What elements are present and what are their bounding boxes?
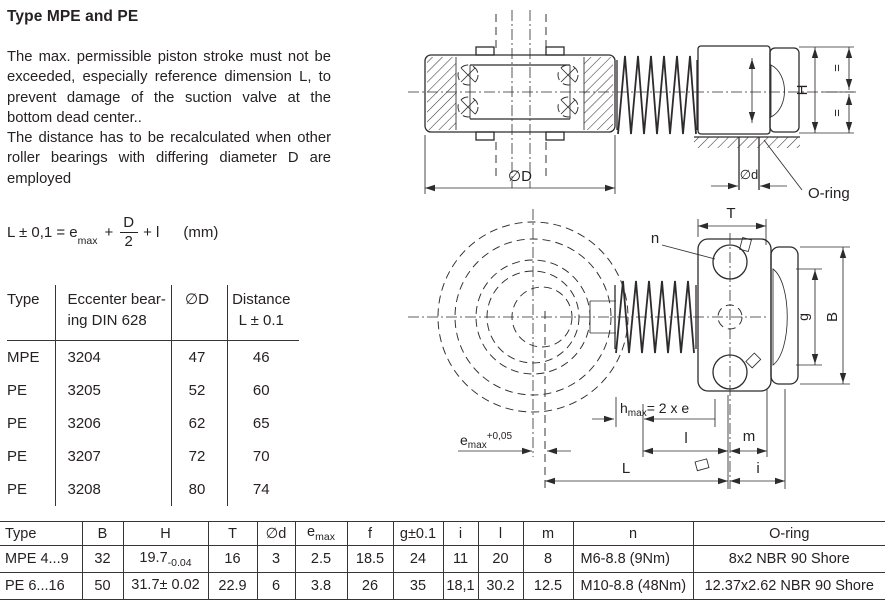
header-line: Distance	[228, 290, 296, 310]
col-header-f: f	[347, 522, 393, 546]
dimension-table: Type B H T ∅d emax f g±0.1 i l m n O-rin…	[0, 521, 885, 600]
cell-type: MPE	[7, 340, 55, 374]
cell-distance: 60	[227, 374, 299, 407]
spring	[617, 56, 697, 134]
cell-diaD: 62	[171, 407, 227, 440]
cell-i: 11	[443, 546, 478, 573]
table-row: PE 3207 72 70	[7, 440, 299, 473]
cell-bearing: 3206	[55, 407, 171, 440]
formula-subscript: max	[78, 235, 98, 247]
page-title: Type MPE and PE	[7, 8, 409, 26]
dim-label-m: m	[743, 428, 756, 445]
col-header-oring: O-ring	[693, 522, 885, 546]
cell-i: 18,1	[443, 573, 478, 600]
cell-g: 35	[393, 573, 443, 600]
table-row: MPE 3204 47 46	[7, 340, 299, 374]
cell-m: 12.5	[523, 573, 573, 600]
piston-head-side	[698, 46, 799, 134]
fraction-denominator: 2	[120, 232, 138, 250]
cell-T: 22.9	[208, 573, 257, 600]
cell-oring: 12.37x2.62 NBR 90 Shore	[693, 573, 885, 600]
intro-paragraph-1: The max. permissible piston stroke must …	[7, 47, 331, 128]
dim-label-l: l	[684, 430, 687, 447]
cell-m: 8	[523, 546, 573, 573]
cell-diaD: 47	[171, 340, 227, 374]
col-header-i: i	[443, 522, 478, 546]
bearing-cross-section	[425, 47, 615, 140]
cell-distance: 70	[227, 440, 299, 473]
dim-emax: emax+0,05	[458, 431, 571, 454]
dim-label-emax: emax+0,05	[460, 431, 512, 451]
col-header-emax: emax	[295, 522, 347, 546]
formula-plus: +	[105, 224, 114, 241]
dim-L: L	[545, 460, 728, 484]
cell-bearing: 3205	[55, 374, 171, 407]
cell-T: 16	[208, 546, 257, 573]
cell-f: 18.5	[347, 546, 393, 573]
top-drawing-side-view: ∅D ∅d H = = O-ring	[408, 2, 883, 212]
formula-tail: + l	[143, 224, 159, 241]
cell-diaD: 80	[171, 473, 227, 506]
dim-label-L: L	[622, 460, 630, 477]
dim-label-i: i	[756, 460, 759, 477]
table-row: MPE 4...9 32 19.7-0.04 16 3 2.5 18.5 24 …	[0, 546, 885, 573]
shaft-centerlines	[408, 10, 856, 188]
dim-m: m	[730, 389, 767, 457]
ground-hatch	[694, 137, 800, 190]
cell-oring: 8x2 NBR 90 Shore	[693, 546, 885, 573]
cell-bearing: 3207	[55, 440, 171, 473]
cell-bearing: 3208	[55, 473, 171, 506]
cell-distance: 65	[227, 407, 299, 440]
dim-i: i	[730, 389, 785, 489]
oring-callout: O-ring	[764, 140, 850, 202]
cell-bearing: 3204	[55, 340, 171, 374]
cell-distance: 74	[227, 473, 299, 506]
cell-n: M10-8.8 (48Nm)	[573, 573, 693, 600]
cell-emax: 3.8	[295, 573, 347, 600]
table-row: PE 6...16 50 31.7± 0.02 22.9 6 3.8 26 35…	[0, 573, 885, 600]
formula-lhs: L ± 0,1 = e	[7, 224, 78, 241]
table-row: PE 3205 52 60	[7, 374, 299, 407]
fraction-numerator: D	[118, 215, 139, 232]
cell-type: PE	[7, 407, 55, 440]
formula-fraction: D 2	[118, 215, 139, 250]
cell-H: 19.7-0.04	[123, 546, 208, 573]
dim-hmax: hmax= 2 x e	[592, 397, 715, 457]
col-header-eccenter-bearing: Eccenter bear- ing DIN 628	[55, 285, 171, 340]
cell-g: 24	[393, 546, 443, 573]
cell-type: MPE 4...9	[0, 546, 82, 573]
cell-n: M6-8.8 (9Nm)	[573, 546, 693, 573]
col-header-l: l	[478, 522, 523, 546]
col-header-g: g±0.1	[393, 522, 443, 546]
cell-B: 32	[82, 546, 123, 573]
dim-label-diad: ∅d	[740, 167, 759, 182]
dim-label-T: T	[726, 205, 735, 222]
dim-label-g: g	[795, 313, 811, 321]
dim-dia-D: ∅D	[425, 135, 615, 194]
dim-H: H	[794, 47, 854, 133]
screw-callout-n: n	[651, 230, 715, 259]
cell-f: 26	[347, 573, 393, 600]
col-header-n: n	[573, 522, 693, 546]
cell-type: PE	[7, 473, 55, 506]
eccentric-bearing-front	[408, 199, 768, 511]
left-column: Type MPE and PE The max. permissible pis…	[7, 8, 409, 506]
cell-type: PE	[7, 440, 55, 473]
dim-label-B: B	[824, 312, 841, 322]
col-header-B: B	[82, 522, 123, 546]
cell-type: PE	[7, 374, 55, 407]
bearing-table-header-row: Type Eccenter bear- ing DIN 628 ∅D Dista…	[7, 285, 299, 340]
intro-text: The max. permissible piston stroke must …	[7, 47, 331, 189]
cell-distance: 46	[227, 340, 299, 374]
cell-l: 30.2	[478, 573, 523, 600]
equal-mark-bottom: =	[829, 109, 844, 117]
dim-label-hmax: hmax= 2 x e	[620, 400, 689, 419]
cell-type: PE 6...16	[0, 573, 82, 600]
col-header-distance: Distance L ± 0.1	[227, 285, 299, 340]
col-header-H: H	[123, 522, 208, 546]
header-line: Eccenter bear-	[68, 290, 167, 310]
dim-dia-d: ∅d	[711, 167, 787, 189]
table-row: PE 3206 62 65	[7, 407, 299, 440]
cell-diad: 3	[257, 546, 295, 573]
col-header-type: Type	[0, 522, 82, 546]
dim-table-header-row: Type B H T ∅d emax f g±0.1 i l m n O-rin…	[0, 522, 885, 546]
col-header-diameter-D: ∅D	[171, 285, 227, 340]
header-line: L ± 0.1	[228, 311, 296, 331]
bottom-drawing-front-view: T n g B hmax= 2 x e emax+0,05	[408, 199, 883, 511]
header-line: ing DIN 628	[68, 311, 167, 331]
dim-label-H: H	[794, 85, 811, 96]
table-row: PE 3208 80 74	[7, 473, 299, 506]
dim-label-diaD: ∅D	[508, 168, 532, 185]
dim-g: g	[795, 269, 822, 365]
stroke-formula: L ± 0,1 = emax + D 2 + l (mm)	[7, 215, 409, 250]
col-header-type: Type	[7, 285, 55, 340]
dim-equal-halves: = =	[829, 47, 852, 133]
bearing-table: Type Eccenter bear- ing DIN 628 ∅D Dista…	[7, 285, 299, 506]
cell-H: 31.7± 0.02	[123, 573, 208, 600]
formula-unit: (mm)	[183, 224, 218, 241]
cell-diaD: 52	[171, 374, 227, 407]
cell-diaD: 72	[171, 440, 227, 473]
cell-diad: 6	[257, 573, 295, 600]
intro-paragraph-2: The distance has to be recalculated when…	[7, 128, 331, 189]
cell-emax: 2.5	[295, 546, 347, 573]
screw-label-n: n	[651, 230, 659, 247]
equal-mark-top: =	[829, 64, 844, 72]
col-header-T: T	[208, 522, 257, 546]
cell-B: 50	[82, 573, 123, 600]
col-header-m: m	[523, 522, 573, 546]
cell-l: 20	[478, 546, 523, 573]
col-header-diad: ∅d	[257, 522, 295, 546]
